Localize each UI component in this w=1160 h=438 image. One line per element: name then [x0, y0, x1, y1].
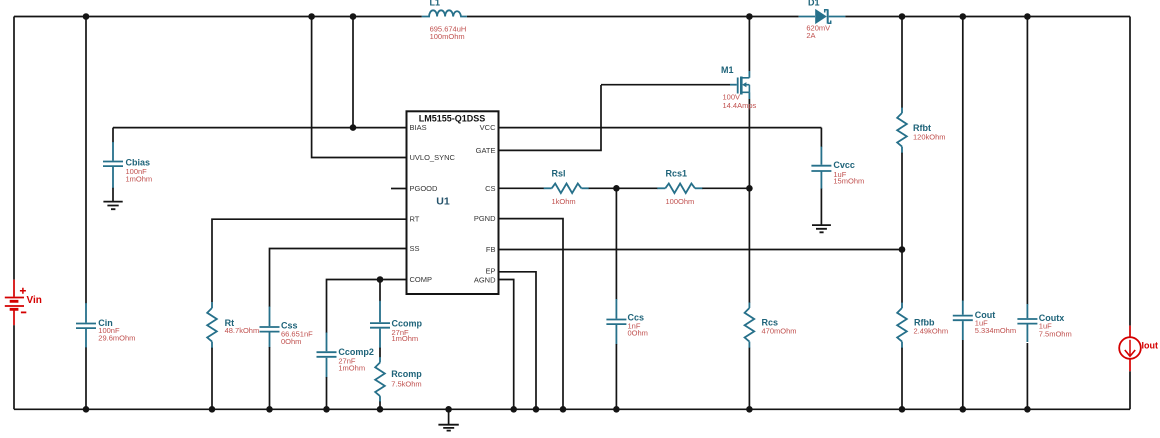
svg-text:7.5mOhm: 7.5mOhm: [1039, 329, 1072, 338]
svg-text:L1: L1: [430, 0, 441, 8]
svg-text:PGND: PGND: [474, 214, 496, 223]
svg-text:AGND: AGND: [474, 275, 496, 284]
svg-text:Vin: Vin: [27, 295, 42, 306]
svg-text:15mOhm: 15mOhm: [833, 177, 864, 186]
svg-text:Iout: Iout: [1142, 340, 1159, 350]
svg-text:M1: M1: [721, 65, 734, 75]
svg-text:Rsl: Rsl: [552, 169, 566, 179]
svg-text:Cvcc: Cvcc: [833, 160, 855, 170]
svg-text:2.49kOhm: 2.49kOhm: [914, 327, 949, 336]
svg-text:PGOOD: PGOOD: [410, 184, 439, 193]
svg-text:48.7kOhm: 48.7kOhm: [225, 326, 260, 335]
svg-text:0Ohm: 0Ohm: [281, 337, 301, 346]
svg-text:D1: D1: [808, 0, 820, 8]
svg-text:EP: EP: [485, 266, 495, 275]
svg-text:0Ohm: 0Ohm: [628, 329, 648, 338]
svg-text:Rfbt: Rfbt: [913, 123, 931, 133]
svg-text:29.6mOhm: 29.6mOhm: [98, 334, 135, 343]
svg-text:U1: U1: [436, 195, 450, 207]
svg-text:VCC: VCC: [480, 123, 496, 132]
svg-text:UVLO_SYNC: UVLO_SYNC: [410, 153, 456, 162]
svg-text:100Ohm: 100Ohm: [666, 197, 695, 206]
svg-text:14.4Amps: 14.4Amps: [723, 101, 757, 110]
svg-text:COMP: COMP: [410, 275, 433, 284]
svg-text:BIAS: BIAS: [410, 123, 427, 132]
svg-text:Rcomp: Rcomp: [391, 369, 422, 379]
svg-text:470mOhm: 470mOhm: [762, 327, 797, 336]
svg-text:1mOhm: 1mOhm: [338, 364, 365, 373]
svg-text:SS: SS: [410, 244, 420, 253]
svg-text:CS: CS: [485, 184, 495, 193]
svg-text:1mOhm: 1mOhm: [126, 175, 153, 184]
svg-text:Cbias: Cbias: [126, 158, 151, 168]
svg-text:7.5kOhm: 7.5kOhm: [391, 379, 421, 388]
svg-text:LM5155-Q1DSS: LM5155-Q1DSS: [419, 113, 486, 123]
svg-text:FB: FB: [486, 245, 496, 254]
svg-text:2A: 2A: [806, 31, 815, 40]
svg-text:GATE: GATE: [476, 146, 496, 155]
svg-text:1mOhm: 1mOhm: [392, 334, 419, 343]
svg-text:100mOhm: 100mOhm: [430, 32, 465, 41]
svg-text:Ccomp2: Ccomp2: [338, 347, 374, 357]
svg-text:120kOhm: 120kOhm: [913, 132, 946, 141]
svg-text:Rcs1: Rcs1: [666, 169, 688, 179]
svg-text:5.334mOhm: 5.334mOhm: [975, 326, 1016, 335]
svg-text:RT: RT: [410, 215, 420, 224]
svg-text:1kOhm: 1kOhm: [552, 197, 576, 206]
